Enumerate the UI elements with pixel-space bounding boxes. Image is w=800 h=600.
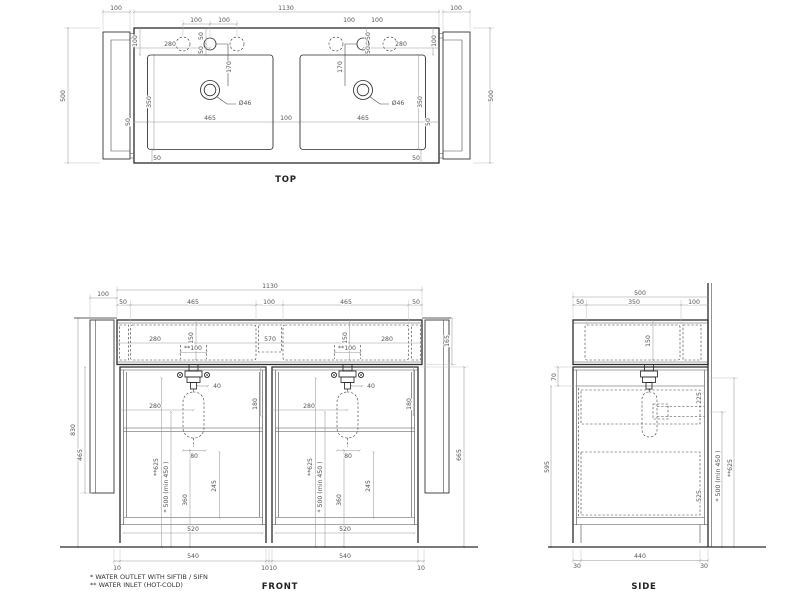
dim-label-side-10: **625 [727,459,734,477]
front-view: 10011305046510046550150150280570280**100… [70,283,468,592]
side-view: 5005035010015070595225525* 500 (min 450 … [544,283,738,592]
dim-label-front-39: 10 [261,565,269,572]
dim-label-top-0: 100 [110,5,122,12]
dim-label-front-24: 80 [190,453,198,460]
dim-label-front-31: * 500 (min 450 ) [317,461,324,512]
dim-label-top-12: Ø46 [239,99,252,107]
side-view-title: SIDE [631,582,656,592]
drain-trap-left [177,365,209,448]
dim-label-front-13: **100 [338,345,356,352]
dim-label-front-4: 100 [263,299,275,306]
footnote-water-outlet: * WATER OUTLET WITH SIFTIB / SIFN [90,573,208,581]
dim-label-top-28: Ø46 [392,99,405,107]
technical-drawing-page: 10011301005005001001005050100280170Ø4635… [0,0,800,600]
dim-label-front-19: 40 [367,383,375,390]
dim-label-top-13: 350 [146,96,153,108]
dim-label-top-25: 100 [431,35,438,47]
dim-label-top-19: 50 [153,155,161,162]
dim-label-front-7: 150 [188,332,195,344]
dim-label-top-15: 465 [204,115,216,122]
drawer-hidden-lower [581,452,700,515]
side-panel-left [103,32,130,159]
dim-label-top-4: 500 [488,90,495,102]
drain-trap-side [641,365,705,438]
side-panel-left-front [90,320,114,493]
side-view-geometry [573,283,712,547]
dim-label-top-27: 170 [337,61,344,73]
dim-label-front-6: 50 [412,299,420,306]
dim-label-side-8: 525 [696,490,703,502]
dim-label-top-29: 350 [417,96,424,108]
dim-label-side-6: 595 [544,461,551,473]
dim-label-front-32: 360 [336,494,343,506]
dim-label-front-26: **625 [153,458,160,476]
dim-label-front-10: 570 [264,336,276,343]
dim-label-side-13: 30 [700,563,708,570]
basin-hidden-side [585,325,680,360]
dim-label-top-24: 50 [365,46,372,54]
dim-label-top-7: 50 [198,32,205,40]
front-view-dimension-lines [78,286,468,565]
dim-label-top-10: 280 [164,41,176,48]
dim-label-top-11: 170 [226,61,233,73]
dim-label-top-21: 100 [343,17,355,24]
dim-label-front-2: 50 [119,299,127,306]
dim-label-front-5: 465 [340,299,352,306]
side-panel-right [443,32,470,159]
basin-left-outline [148,55,274,150]
front-view-geometry [74,318,451,543]
dim-label-front-17: 665 [456,449,463,461]
dim-label-front-30: **625 [307,458,314,476]
dim-label-front-34: 520 [187,526,199,533]
dim-label-front-33: 245 [365,480,372,492]
dim-label-front-12: **100 [184,345,202,352]
drain-trap-right [331,365,363,448]
dim-label-top-22: 100 [371,17,383,24]
dim-label-top-8: 50 [198,46,205,54]
optional-hole-icon [176,37,190,51]
dim-label-side-0: 500 [634,290,646,297]
dim-label-front-41: 10 [417,565,425,572]
dim-label-front-1: 1130 [262,283,278,290]
basin-right-outline [300,55,426,150]
dim-label-top-23: 50 [365,32,372,40]
dim-label-front-23: 180 [406,398,413,410]
dim-label-side-5: 70 [551,373,558,381]
dim-label-front-38: 10 [113,565,121,572]
dim-label-top-26: 280 [395,41,407,48]
dim-label-front-27: * 500 (min 450 ) [163,461,170,512]
dim-label-front-36: 540 [187,553,199,560]
dim-label-front-22: 180 [252,398,259,410]
dim-label-top-1: 1130 [278,5,294,12]
dim-label-front-35: 520 [339,526,351,533]
dim-label-side-9: * 500 (min 450 ) [715,450,722,501]
dim-label-side-11: 30 [573,563,581,570]
dim-label-top-2: 100 [450,5,462,12]
dim-label-front-28: 360 [182,494,189,506]
vanity-technical-drawing: 10011301005005001001005050100280170Ø4635… [0,0,800,600]
dim-label-top-14: 50 [125,118,132,126]
top-view-title: TOP [275,175,297,185]
dim-label-top-17: 465 [357,115,369,122]
dim-label-front-37: 540 [339,553,351,560]
siphon-hidden [183,392,204,438]
dim-label-side-2: 350 [628,299,640,306]
dim-label-top-20: 50 [412,155,420,162]
dim-label-front-25: 80 [344,453,352,460]
dim-label-side-4: 150 [645,335,652,347]
siphon-hidden-side [642,392,657,437]
dim-label-top-6: 100 [218,17,230,24]
dim-label-front-8: 150 [342,332,349,344]
dim-label-front-29: 245 [211,480,218,492]
optional-hole-icon [230,37,244,51]
front-view-title: FRONT [262,582,299,592]
dim-label-front-15: 465 [77,449,84,461]
dim-label-front-20: 280 [149,403,161,410]
dim-label-front-40: 10 [269,565,277,572]
siphon-hidden [337,392,358,438]
drawer-hidden-upper [581,390,700,424]
dim-label-top-18: 50 [425,118,432,126]
top-view: 10011301005005001001005050100280170Ø4635… [60,5,495,185]
dim-label-front-18: 40 [213,383,221,390]
dim-label-front-11: 280 [381,336,393,343]
dim-label-top-3: 500 [60,90,67,102]
dim-label-top-16: 100 [280,115,292,122]
dim-label-front-21: 280 [303,403,315,410]
dim-label-side-7: 225 [696,392,703,404]
dim-label-side-3: 100 [688,299,700,306]
dim-label-side-1: 50 [576,299,584,306]
dim-label-front-16: 165 [444,335,451,347]
side-view-dimension-lines [551,292,738,565]
dim-label-side-12: 440 [634,553,646,560]
dim-label-front-3: 465 [187,299,199,306]
cabinet-side [573,367,708,543]
footnote-water-inlet: ** WATER INLET (HOT-COLD) [90,581,183,589]
countertop-side [573,320,708,365]
dim-label-top-5: 100 [190,17,202,24]
dim-label-top-9: 100 [132,35,139,47]
dim-label-front-14: 830 [70,424,77,436]
optional-hole-icon [329,37,343,51]
dim-label-front-9: 280 [149,336,161,343]
dim-label-front-0: 100 [97,291,109,298]
